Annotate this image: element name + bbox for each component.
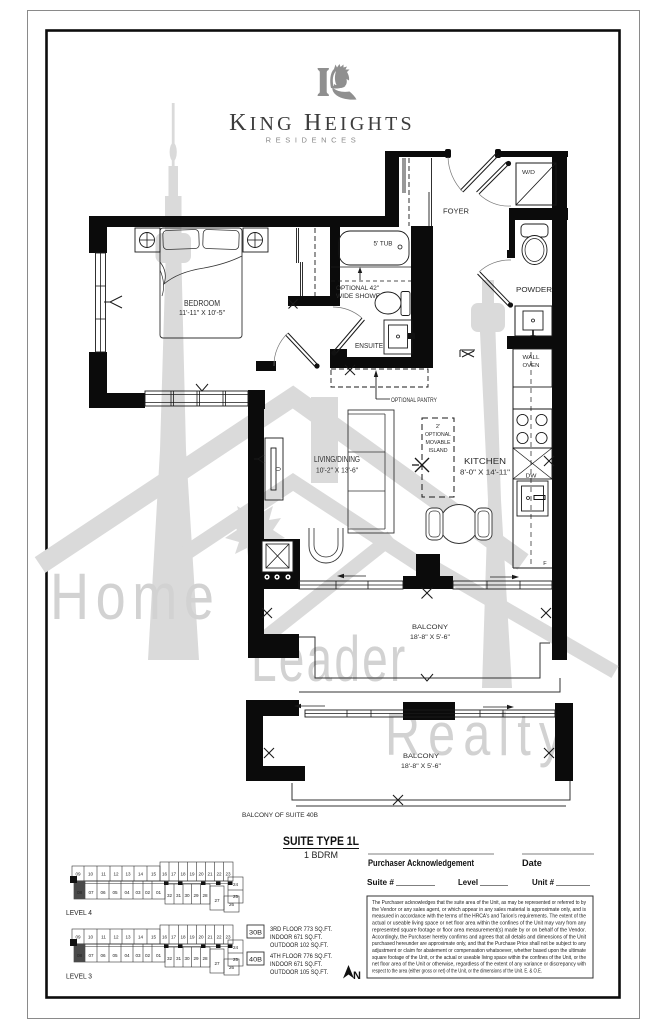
svg-text:N: N — [353, 970, 361, 982]
svg-text:13: 13 — [125, 935, 131, 940]
svg-text:Level: Level — [458, 877, 478, 887]
svg-text:4TH FLOOR 776 SQ.FT.: 4TH FLOOR 776 SQ.FT. — [270, 953, 332, 960]
svg-text:11: 11 — [101, 935, 106, 940]
svg-text:14: 14 — [138, 872, 144, 877]
svg-text:25: 25 — [233, 894, 239, 899]
svg-text:17: 17 — [171, 935, 177, 940]
svg-text:26: 26 — [229, 965, 235, 970]
svg-text:20: 20 — [198, 935, 204, 940]
svg-text:ISLAND: ISLAND — [429, 448, 448, 454]
svg-text:OUTDOOR 102 SQ.FT.: OUTDOOR 102 SQ.FT. — [270, 942, 328, 949]
svg-text:MOVABLE: MOVABLE — [426, 440, 451, 446]
svg-text:19: 19 — [189, 872, 195, 877]
svg-text:8'-0" X 14'-11": 8'-0" X 14'-11" — [460, 468, 510, 477]
svg-text:03: 03 — [135, 890, 141, 895]
svg-text:23: 23 — [225, 872, 231, 877]
svg-text:measured in accordance with th: measured in accordance with the terms of… — [372, 914, 586, 920]
svg-text:15: 15 — [151, 872, 157, 877]
svg-text:Accordingly, the Purchaser her: Accordingly, the Purchaser hereby confir… — [372, 934, 586, 940]
svg-text:30B: 30B — [249, 930, 263, 937]
svg-text:Unit #: Unit # — [532, 877, 554, 887]
svg-text:LEVEL 4: LEVEL 4 — [66, 910, 92, 917]
svg-text:07: 07 — [88, 953, 94, 958]
svg-text:26: 26 — [229, 902, 235, 907]
svg-text:12: 12 — [113, 935, 119, 940]
svg-text:28: 28 — [202, 893, 208, 898]
svg-text:13: 13 — [125, 872, 131, 877]
svg-text:11: 11 — [101, 872, 106, 877]
svg-text:10'-2" X 13'-6": 10'-2" X 13'-6" — [316, 466, 358, 475]
svg-text:31: 31 — [176, 956, 182, 961]
svg-text:represented square footage or: represented square footage or floor area… — [372, 927, 586, 933]
svg-text:06: 06 — [100, 890, 106, 895]
svg-text:24: 24 — [233, 882, 239, 887]
svg-text:POWDER: POWDER — [516, 285, 552, 294]
svg-text:04: 04 — [124, 953, 130, 958]
svg-text:23: 23 — [225, 935, 231, 940]
svg-text:Purchaser Acknowledgement: Purchaser Acknowledgement — [368, 858, 474, 868]
svg-text:WALL: WALL — [523, 355, 541, 361]
svg-text:32: 32 — [167, 893, 173, 898]
svg-text:29: 29 — [193, 893, 199, 898]
svg-text:32: 32 — [167, 956, 173, 961]
svg-text:21: 21 — [207, 872, 213, 877]
svg-text:RESIDENCES: RESIDENCES — [266, 136, 361, 145]
svg-text:16: 16 — [162, 872, 168, 877]
svg-text:01: 01 — [156, 953, 162, 958]
svg-text:20: 20 — [198, 872, 204, 877]
svg-text:KITCHEN: KITCHEN — [464, 457, 506, 466]
svg-text:adjustment or claim for abatem: adjustment or claim for abatement or com… — [372, 948, 586, 954]
svg-text:FOYER: FOYER — [443, 207, 469, 216]
svg-text:Home: Home — [50, 559, 221, 633]
svg-text:OPTIONAL: OPTIONAL — [425, 432, 451, 438]
svg-text:16: 16 — [162, 935, 168, 940]
svg-text:OPTIONAL PANTRY: OPTIONAL PANTRY — [391, 398, 437, 404]
svg-text:the Vendor or any sales agent,: the Vendor or any sales agent, or which … — [372, 907, 586, 913]
svg-text:04: 04 — [124, 890, 130, 895]
svg-text:LEVEL 3: LEVEL 3 — [66, 974, 92, 981]
svg-text:17: 17 — [171, 872, 177, 877]
svg-text:The Purchaser acknowledges tha: The Purchaser acknowledges that the suit… — [372, 900, 586, 906]
svg-text:OPTIONAL 42": OPTIONAL 42" — [336, 286, 379, 292]
svg-text:18: 18 — [180, 935, 186, 940]
svg-text:08: 08 — [77, 890, 83, 895]
svg-text:10: 10 — [88, 872, 94, 877]
svg-text:05: 05 — [112, 953, 118, 958]
svg-text:ENSUITE: ENSUITE — [355, 341, 383, 350]
svg-text:F: F — [543, 561, 547, 567]
svg-text:18: 18 — [180, 872, 186, 877]
svg-text:15: 15 — [151, 935, 157, 940]
svg-text:INDOOR 671 SQ.FT.: INDOOR 671 SQ.FT. — [270, 961, 322, 968]
svg-text:12: 12 — [113, 872, 119, 877]
svg-text:BALCONY OF SUITE 40B: BALCONY OF SUITE 40B — [242, 812, 318, 819]
svg-text:square footage of the Unit, or: square footage of the Unit, or the actua… — [372, 955, 586, 961]
svg-text:24: 24 — [233, 945, 239, 950]
svg-text:02: 02 — [145, 890, 151, 895]
svg-text:05: 05 — [112, 890, 118, 895]
svg-text:22: 22 — [216, 935, 222, 940]
svg-text:09: 09 — [75, 935, 81, 940]
svg-text:11'-11" X 10'-5": 11'-11" X 10'-5" — [179, 308, 225, 317]
svg-text:03: 03 — [135, 953, 141, 958]
svg-text:respect to the area (either gr: respect to the area (either gross or net… — [372, 969, 542, 975]
svg-text:40B: 40B — [249, 957, 263, 964]
svg-text:09: 09 — [75, 872, 81, 877]
svg-text:18'-8" X 5'-6": 18'-8" X 5'-6" — [410, 634, 450, 641]
svg-text:29: 29 — [193, 956, 199, 961]
svg-text:30: 30 — [184, 956, 190, 961]
svg-text:DW: DW — [526, 474, 538, 480]
svg-text:08: 08 — [77, 953, 83, 958]
svg-text:KING HEIGHTS: KING HEIGHTS — [229, 110, 415, 136]
svg-text:SUITE TYPE 1L: SUITE TYPE 1L — [283, 834, 359, 848]
svg-text:31: 31 — [176, 893, 182, 898]
svg-text:purchased hereunder are approx: purchased hereunder are approximate only… — [372, 941, 586, 947]
svg-text:BEDROOM: BEDROOM — [184, 299, 220, 308]
svg-text:2': 2' — [436, 424, 440, 430]
svg-text:19: 19 — [189, 935, 195, 940]
svg-text:BALCONY: BALCONY — [403, 753, 440, 760]
svg-text:21: 21 — [207, 935, 213, 940]
svg-text:18'-8" X 5'-6": 18'-8" X 5'-6" — [401, 763, 441, 770]
svg-text:1 BDRM: 1 BDRM — [304, 850, 338, 861]
svg-text:W/D: W/D — [522, 170, 535, 176]
svg-text:OUTDOOR 105 SQ.FT.: OUTDOOR 105 SQ.FT. — [270, 969, 328, 976]
svg-text:LIVING/DINING: LIVING/DINING — [314, 455, 360, 464]
svg-text:22: 22 — [216, 872, 222, 877]
svg-text:28: 28 — [202, 956, 208, 961]
svg-text:27: 27 — [214, 961, 220, 966]
svg-text:5' TUB: 5' TUB — [374, 241, 393, 248]
svg-text:27: 27 — [214, 898, 220, 903]
svg-text:14: 14 — [138, 935, 144, 940]
svg-text:01: 01 — [156, 890, 162, 895]
svg-text:BALCONY: BALCONY — [412, 624, 449, 631]
svg-text:Date: Date — [522, 858, 542, 868]
svg-text:10: 10 — [88, 935, 94, 940]
svg-text:Suite #: Suite # — [367, 877, 394, 887]
svg-text:actual or useable living space: actual or useable living space or net fl… — [372, 921, 586, 927]
svg-text:3RD FLOOR 773 SQ.FT.: 3RD FLOOR 773 SQ.FT. — [270, 926, 332, 933]
svg-text:30: 30 — [184, 893, 190, 898]
svg-text:02: 02 — [145, 953, 151, 958]
svg-text:06: 06 — [100, 953, 106, 958]
svg-text:INDOOR 671 SQ.FT.: INDOOR 671 SQ.FT. — [270, 934, 322, 941]
svg-text:25: 25 — [233, 957, 239, 962]
svg-text:net floor area of the Unit or: net floor area of the Unit or otherwise,… — [372, 962, 586, 968]
svg-text:07: 07 — [88, 890, 94, 895]
